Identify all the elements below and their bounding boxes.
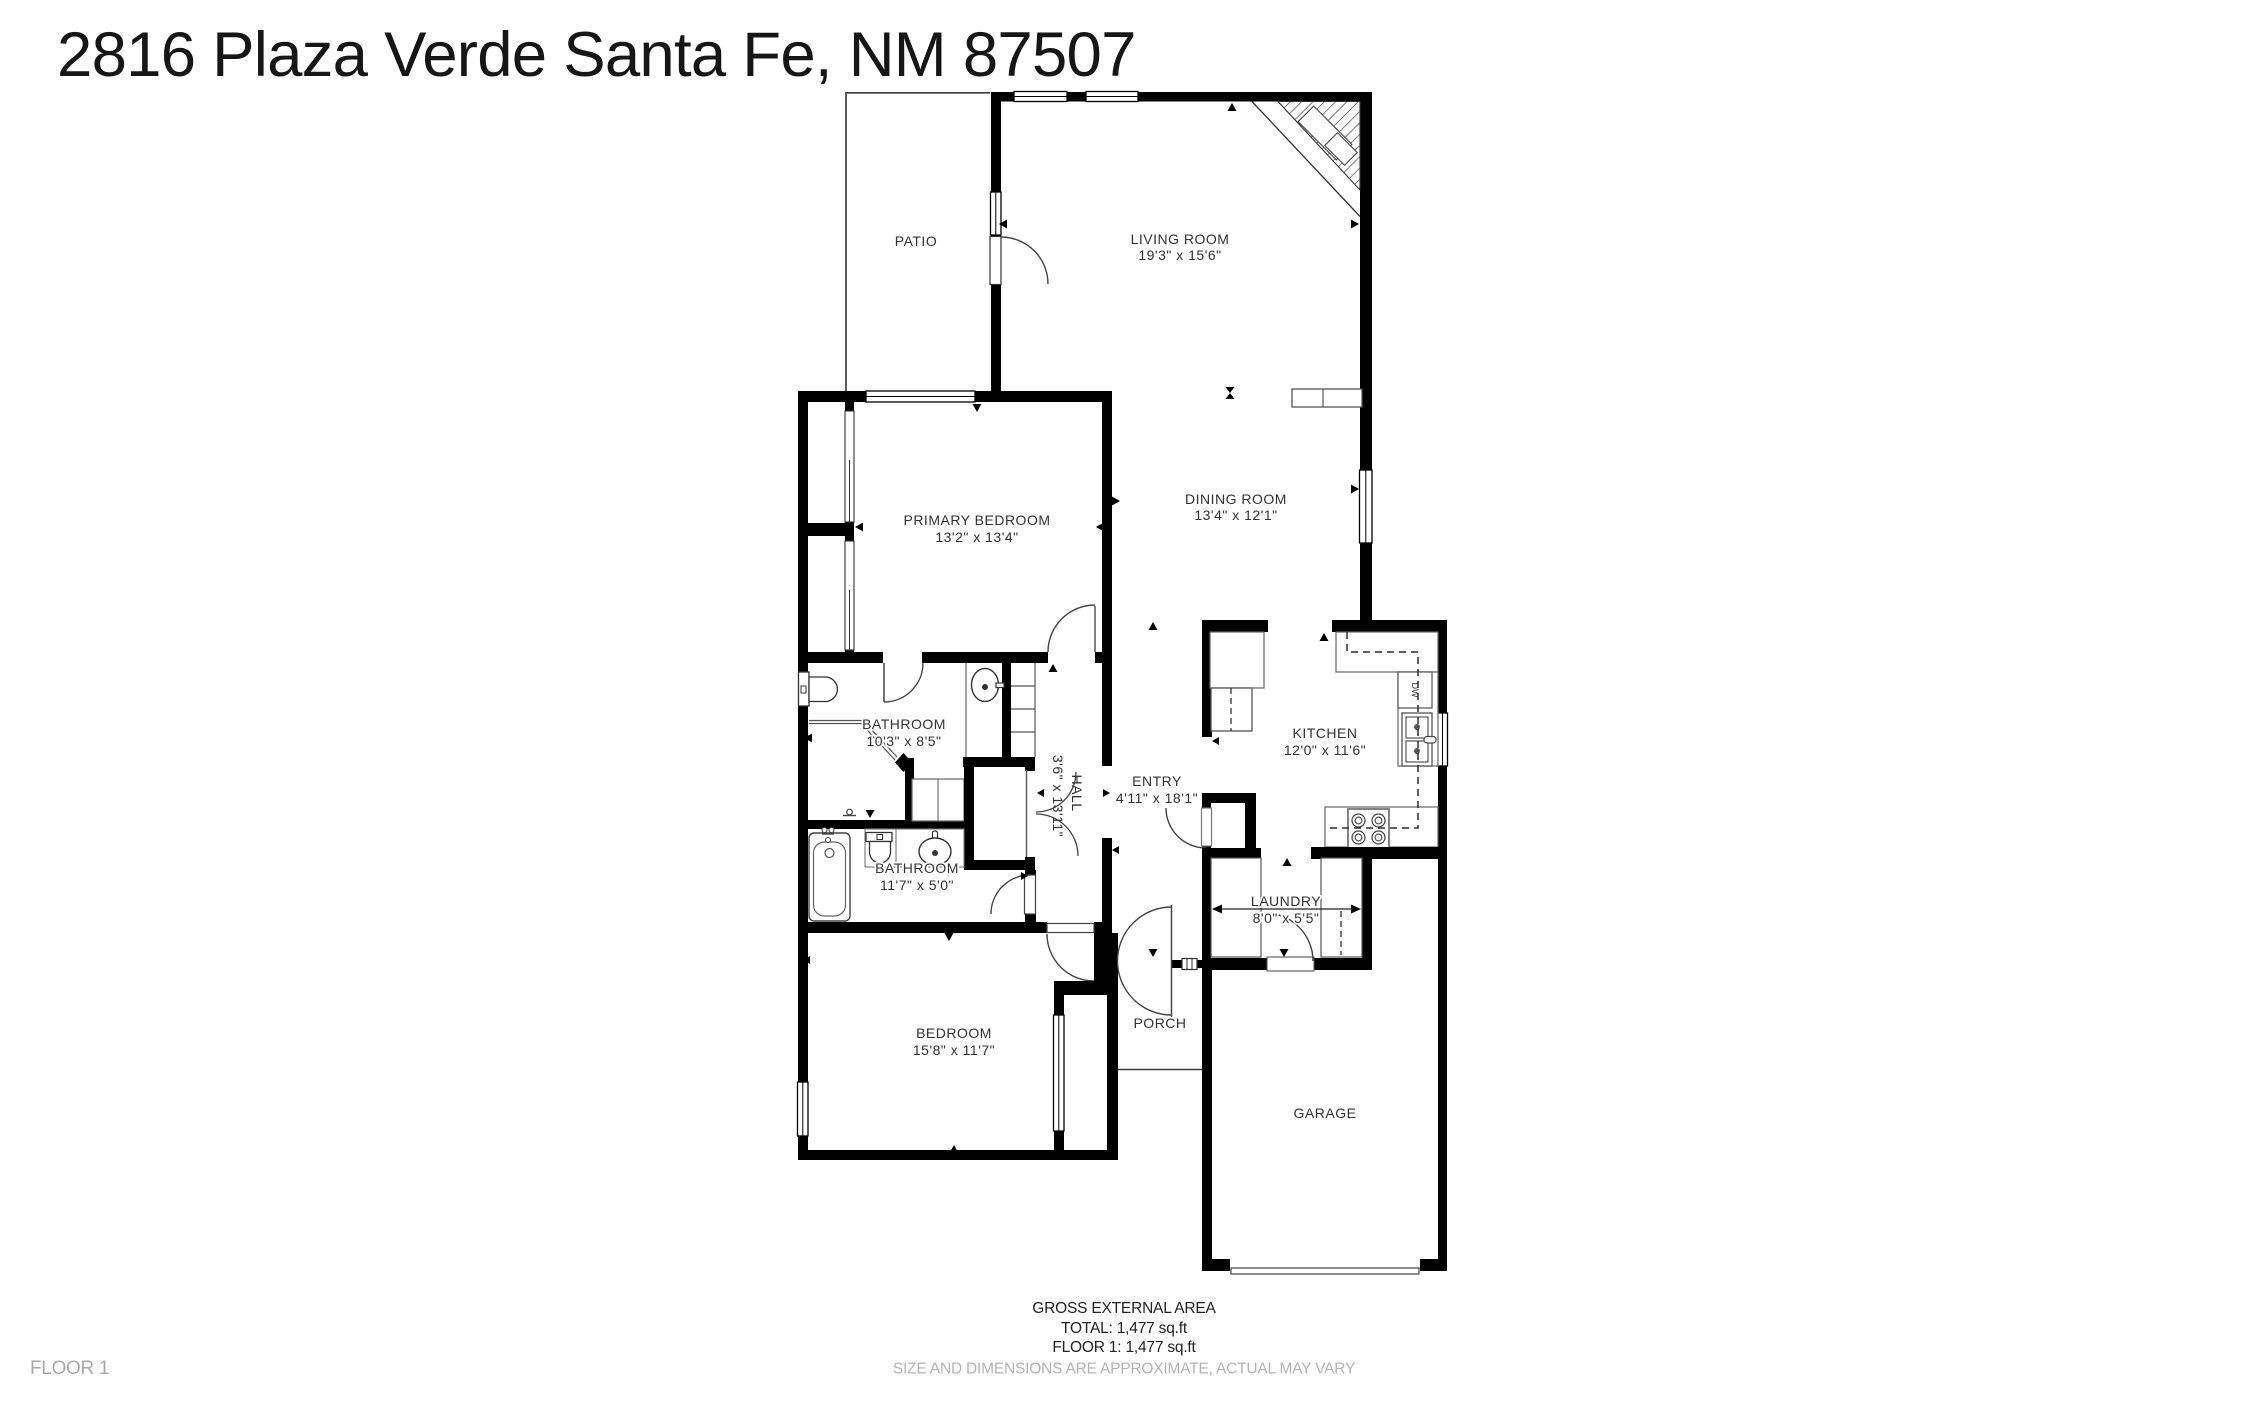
svg-text:PRIMARY BEDROOM: PRIMARY BEDROOM [903,512,1050,528]
svg-text:12'0" x 11'6": 12'0" x 11'6" [1284,742,1366,758]
svg-text:TOTAL: 1,477 sq.ft: TOTAL: 1,477 sq.ft [1061,1320,1188,1337]
svg-text:BEDROOM: BEDROOM [916,1025,992,1041]
svg-text:DINING ROOM: DINING ROOM [1185,491,1287,507]
svg-text:8'0" x 5'5": 8'0" x 5'5" [1253,910,1320,926]
svg-text:GROSS EXTERNAL AREA: GROSS EXTERNAL AREA [1032,1300,1216,1317]
svg-text:SIZE AND DIMENSIONS ARE APPROX: SIZE AND DIMENSIONS ARE APPROXIMATE, ACT… [893,1361,1355,1378]
svg-text:11'7" x 5'0": 11'7" x 5'0" [880,877,954,893]
svg-text:BATHROOM: BATHROOM [862,716,946,732]
svg-text:PATIO: PATIO [895,233,937,249]
svg-text:BATHROOM: BATHROOM [875,860,959,876]
svg-text:13'2" x 13'4": 13'2" x 13'4" [935,529,1018,545]
svg-text:4'11" x 18'1": 4'11" x 18'1" [1116,790,1198,806]
svg-text:FLOOR 1: 1,477 sq.ft: FLOOR 1: 1,477 sq.ft [1052,1339,1196,1356]
svg-text:13'4" x 12'1": 13'4" x 12'1" [1194,507,1277,523]
svg-text:GARAGE: GARAGE [1294,1105,1357,1121]
svg-text:ENTRY: ENTRY [1132,773,1182,789]
svg-text:HALL: HALL [1069,774,1085,811]
svg-text:LAUNDRY: LAUNDRY [1251,893,1321,909]
svg-text:PORCH: PORCH [1133,1015,1186,1031]
svg-text:10'3" x 8'5": 10'3" x 8'5" [867,733,942,749]
svg-text:15'8" x 11'7": 15'8" x 11'7" [913,1042,995,1058]
svg-text:2816 Plaza Verde Santa Fe, NM: 2816 Plaza Verde Santa Fe, NM 87507 [57,20,1136,90]
svg-text:KITCHEN: KITCHEN [1293,725,1358,741]
svg-text:LIVING ROOM: LIVING ROOM [1131,231,1230,247]
svg-text:19'3" x 15'6": 19'3" x 15'6" [1138,247,1221,263]
svg-text:FLOOR 1: FLOOR 1 [30,1358,109,1379]
